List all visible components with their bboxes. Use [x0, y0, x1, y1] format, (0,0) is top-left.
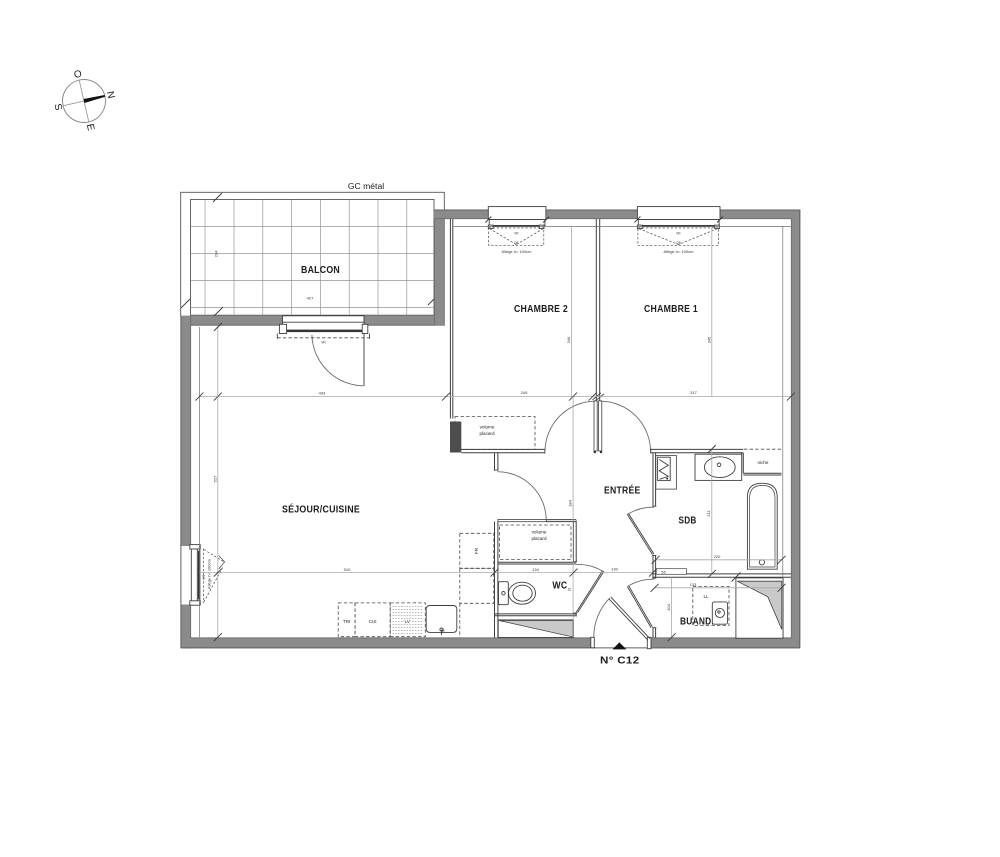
svg-text:OB: OB: [676, 241, 681, 245]
svg-text:CHAMBRE 1: CHAMBRE 1: [644, 303, 698, 315]
svg-text:211: 211: [706, 510, 711, 517]
svg-text:427: 427: [307, 296, 314, 301]
svg-text:VR: VR: [202, 574, 206, 579]
svg-text:ENTRÉE: ENTRÉE: [604, 484, 641, 497]
svg-text:130: 130: [611, 566, 618, 571]
svg-text:55: 55: [661, 569, 666, 574]
svg-text:134: 134: [532, 567, 539, 572]
svg-text:104: 104: [666, 603, 671, 610]
svg-text:133: 133: [690, 582, 697, 587]
svg-text:TRI: TRI: [343, 619, 350, 624]
svg-text:CHAMBRE 2: CHAMBRE 2: [514, 303, 568, 315]
svg-text:Allège h= 100cm: Allège h= 100cm: [502, 249, 533, 254]
svg-text:249: 249: [521, 390, 528, 395]
svg-text:317: 317: [690, 390, 697, 395]
svg-text:184: 184: [568, 499, 573, 506]
svg-text:345: 345: [707, 336, 712, 343]
svg-text:volume: volume: [532, 530, 547, 535]
svg-text:SÉJOUR/CUISINE: SÉJOUR/CUISINE: [282, 502, 360, 515]
svg-text:FR: FR: [474, 547, 479, 554]
svg-text:WC: WC: [552, 580, 567, 592]
svg-text:VR: VR: [676, 232, 681, 236]
svg-text:510: 510: [344, 567, 351, 572]
svg-text:placard: placard: [531, 536, 547, 541]
svg-text:204: 204: [214, 250, 219, 257]
svg-text:N° C12: N° C12: [600, 654, 640, 666]
svg-text:60: 60: [442, 629, 446, 633]
svg-text:VR: VR: [321, 341, 326, 345]
svg-text:92: 92: [568, 588, 572, 592]
svg-text:volume: volume: [480, 425, 495, 430]
svg-text:CUI: CUI: [369, 619, 377, 624]
svg-text:OB: OB: [514, 241, 519, 245]
svg-text:GC métal: GC métal: [348, 181, 384, 191]
svg-text:VR: VR: [514, 232, 519, 236]
svg-text:niche: niche: [758, 460, 769, 465]
svg-text:Allège h= 100cm: Allège h= 100cm: [664, 249, 695, 254]
svg-text:placard: placard: [479, 431, 495, 436]
svg-text:LL: LL: [703, 594, 709, 599]
svg-text:346: 346: [566, 336, 571, 343]
svg-text:SDB: SDB: [679, 515, 697, 527]
svg-text:Allège h= 100cm: Allège h= 100cm: [207, 558, 212, 589]
svg-text:433: 433: [319, 390, 326, 395]
svg-text:BALCON: BALCON: [301, 264, 340, 276]
svg-text:527: 527: [213, 475, 218, 482]
svg-text:220: 220: [714, 554, 721, 559]
svg-text:LV: LV: [405, 619, 411, 624]
